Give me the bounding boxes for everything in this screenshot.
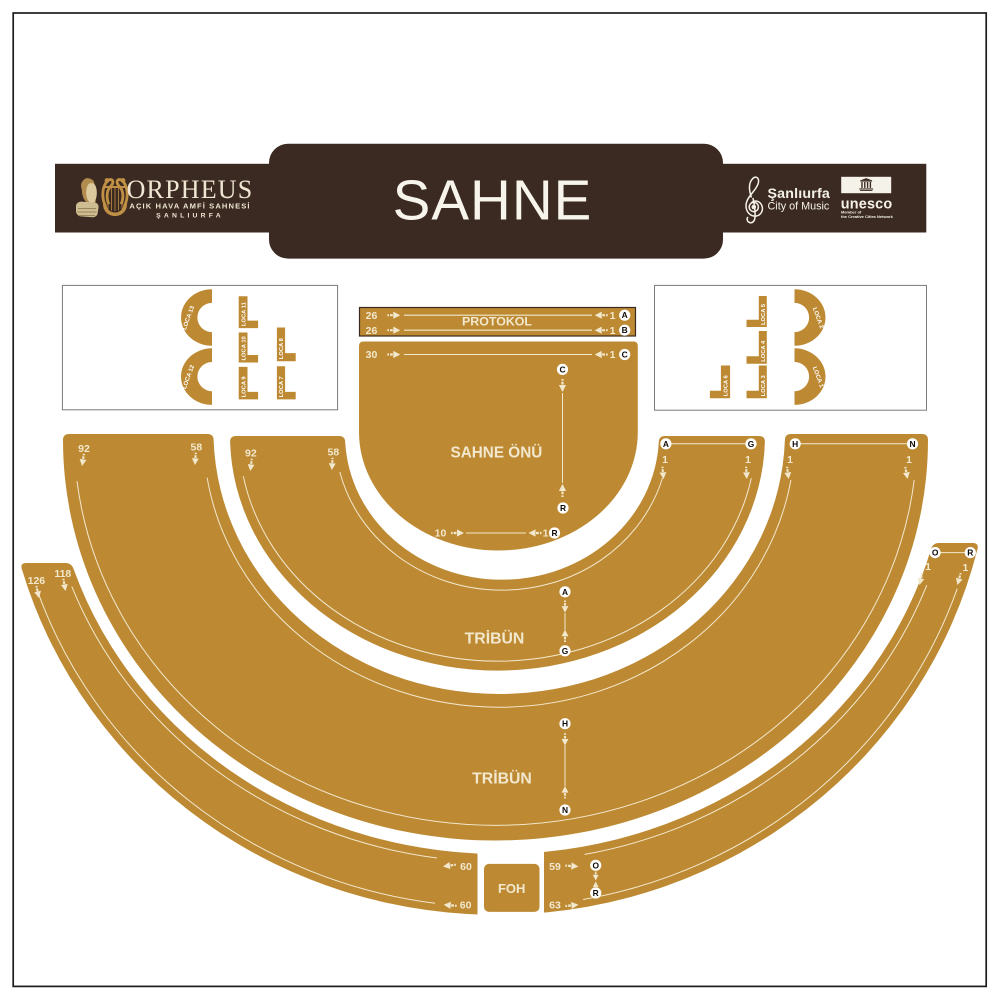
svg-text:92: 92 (245, 448, 257, 460)
svg-text:60: 60 (460, 899, 472, 911)
svg-text:LOCA 3: LOCA 3 (761, 374, 767, 396)
svg-text:60: 60 (460, 861, 472, 873)
svg-text:LOCA 11: LOCA 11 (241, 301, 247, 326)
svg-text:58: 58 (328, 447, 340, 459)
svg-text:C: C (622, 350, 628, 360)
svg-text:SAHNE: SAHNE (393, 169, 593, 232)
svg-text:the Creative Cities Network: the Creative Cities Network (841, 214, 894, 219)
svg-text:1: 1 (662, 454, 668, 466)
svg-text:26: 26 (366, 310, 378, 322)
svg-text:FOH: FOH (498, 881, 525, 896)
svg-text:R: R (967, 548, 973, 558)
svg-text:1: 1 (962, 562, 968, 574)
svg-text:118: 118 (54, 568, 71, 580)
svg-text:O: O (932, 548, 939, 558)
svg-text:LOCA 8: LOCA 8 (279, 337, 285, 359)
svg-text:H: H (562, 719, 568, 729)
svg-text:1: 1 (610, 349, 616, 361)
svg-text:Şanlıurfa: Şanlıurfa (768, 186, 831, 202)
svg-text:City of Music: City of Music (768, 201, 830, 213)
svg-text:TRİBÜN: TRİBÜN (472, 768, 532, 787)
svg-text:A: A (562, 587, 568, 597)
svg-text:LOCA 9: LOCA 9 (241, 376, 247, 398)
svg-text:ŞANLIURFA: ŞANLIURFA (156, 212, 224, 219)
svg-text:R: R (551, 528, 557, 538)
svg-text:1: 1 (925, 561, 931, 573)
svg-text:SAHNE ÖNÜ: SAHNE ÖNÜ (451, 444, 543, 461)
svg-text:1: 1 (610, 310, 616, 322)
svg-text:LOCA 5: LOCA 5 (761, 303, 767, 325)
svg-text:63: 63 (549, 899, 561, 911)
svg-text:TRİBÜN: TRİBÜN (465, 628, 525, 647)
svg-text:LOCA 6: LOCA 6 (724, 374, 730, 396)
svg-text:N: N (562, 805, 568, 815)
svg-text:LOCA 4: LOCA 4 (761, 340, 767, 362)
svg-text:58: 58 (191, 441, 203, 453)
svg-text:1: 1 (787, 454, 793, 466)
svg-text:H: H (792, 439, 798, 449)
svg-text:G: G (562, 646, 569, 656)
svg-text:1: 1 (745, 454, 751, 466)
svg-text:PROTOKOL: PROTOKOL (462, 315, 532, 329)
svg-text:59: 59 (549, 861, 561, 873)
svg-text:G: G (748, 439, 755, 449)
svg-text:LOCA 7: LOCA 7 (279, 376, 285, 397)
svg-text:AÇIK HAVA AMFİ SAHNESİ: AÇIK HAVA AMFİ SAHNESİ (129, 202, 250, 211)
svg-text:1: 1 (610, 325, 616, 337)
svg-text:10: 10 (435, 528, 447, 540)
svg-text:ORPHEUS: ORPHEUS (127, 175, 254, 204)
svg-text:B: B (622, 325, 628, 335)
svg-text:O: O (592, 860, 599, 870)
svg-text:R: R (560, 503, 566, 513)
svg-text:R: R (593, 888, 599, 898)
svg-text:1: 1 (906, 454, 912, 466)
svg-text:C: C (559, 364, 565, 374)
svg-text:1: 1 (543, 528, 549, 540)
svg-text:92: 92 (78, 443, 90, 455)
svg-text:126: 126 (28, 575, 46, 587)
svg-text:LOCA 10: LOCA 10 (241, 336, 247, 360)
svg-text:A: A (622, 310, 628, 320)
svg-text:30: 30 (366, 349, 378, 361)
svg-text:N: N (909, 439, 915, 449)
svg-text:A: A (663, 439, 669, 449)
svg-text:26: 26 (366, 325, 378, 337)
